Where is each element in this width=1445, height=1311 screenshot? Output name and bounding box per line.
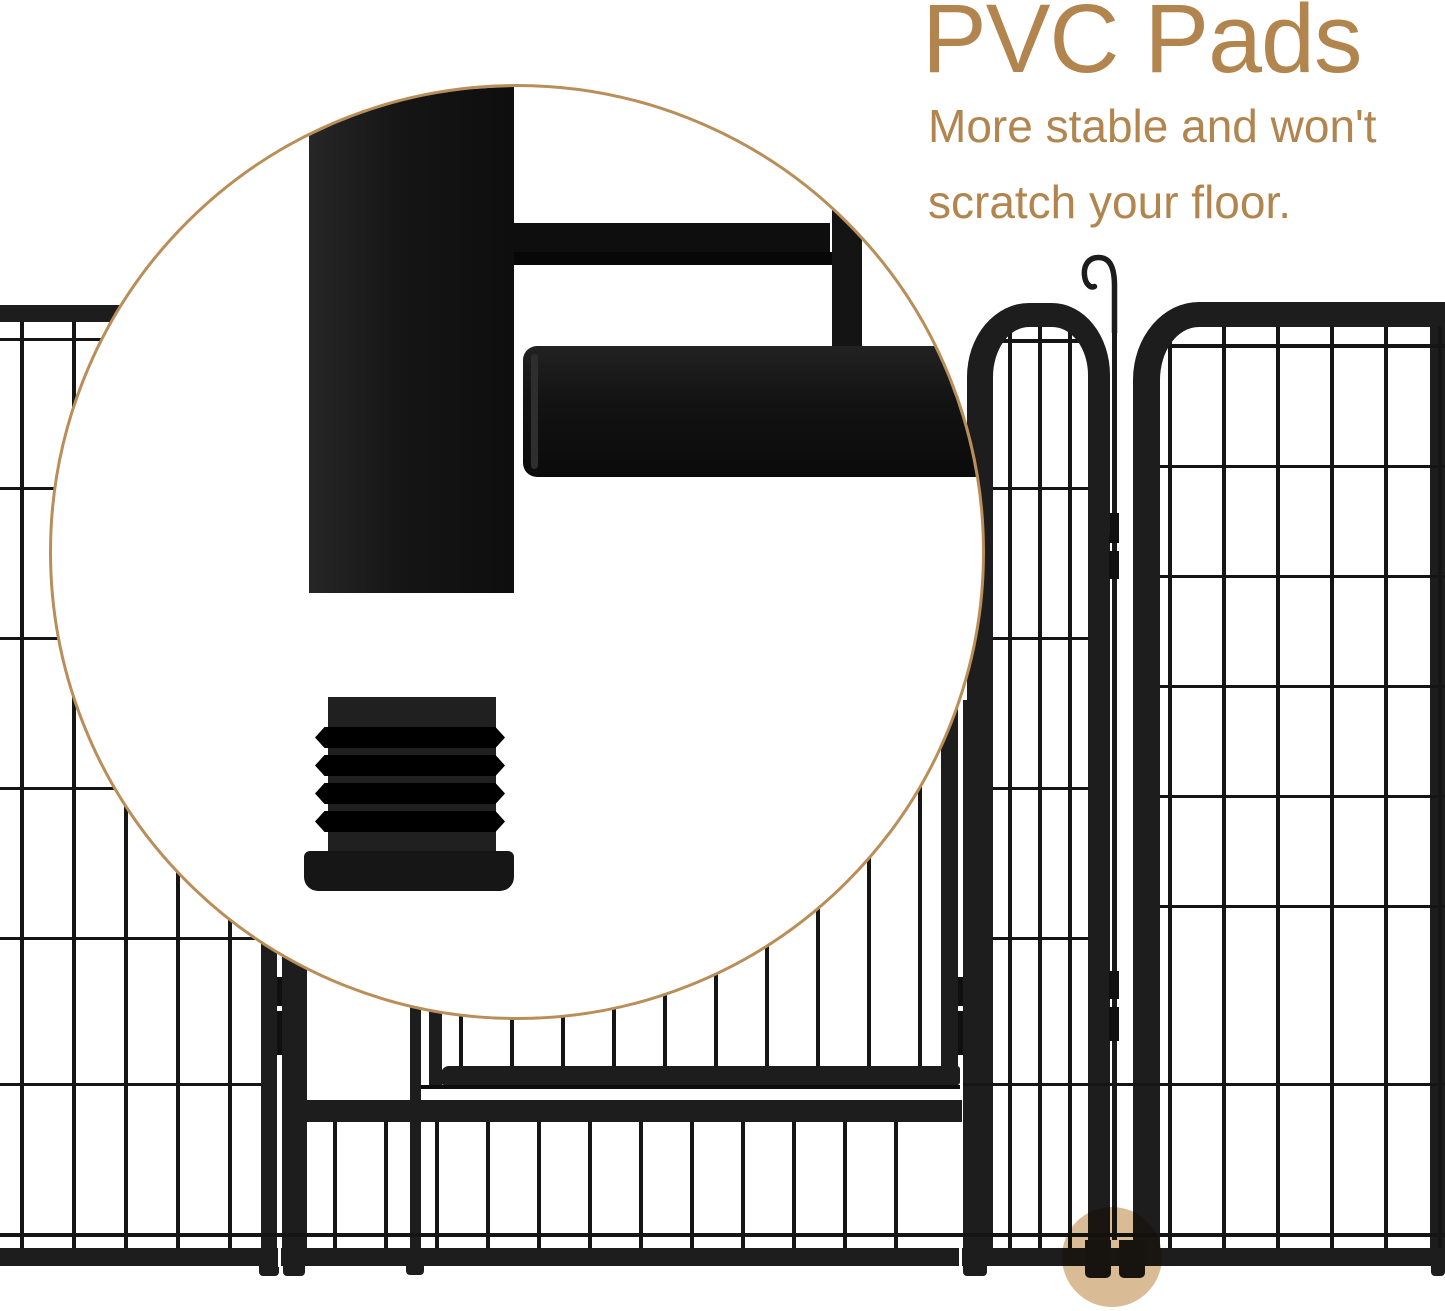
fence-bar: [20, 322, 24, 1248]
fence-bar: [486, 1122, 490, 1248]
fence-bar: [792, 1122, 796, 1248]
fence-bar: [406, 1266, 424, 1275]
fence-bar: [993, 637, 1088, 640]
fence-bar: [1160, 905, 1445, 908]
fence-bar: [0, 1248, 1445, 1266]
fence-bar: [1088, 520, 1110, 1248]
floor-highlight-dot: [1062, 1207, 1162, 1307]
fence-bar: [959, 1246, 962, 1267]
fence-bar: [1109, 1007, 1119, 1041]
fence-bar: [421, 1085, 960, 1089]
fence-bar: [410, 1003, 421, 1248]
fence-bar: [741, 1122, 745, 1248]
fence-panel-arch-wide: [1133, 302, 1445, 534]
fence-bar: [941, 700, 958, 1085]
fence-bar: [894, 1122, 898, 1248]
fence-bar: [333, 1122, 337, 1248]
fence-panel-arch-narrow: [967, 303, 1110, 535]
fence-bar: [277, 1011, 282, 1055]
pvc-pad-base-cap: [304, 851, 514, 891]
fence-bar: [259, 1266, 279, 1276]
fence-bar: [843, 1122, 847, 1248]
feature-text-block: PVC Pads More stable and won't scratch y…: [0, 0, 1445, 300]
fence-bar: [435, 1122, 439, 1248]
pvc-pad-rib: [315, 755, 505, 776]
fence-bar: [1133, 520, 1160, 1248]
fence-bar: [1160, 575, 1445, 578]
fence-bar: [963, 1083, 1445, 1086]
fence-bar: [958, 1011, 963, 1055]
fence-bar: [639, 1122, 643, 1248]
fence-bar: [537, 1122, 541, 1248]
pvc-pad-rib: [315, 811, 505, 832]
fence-bar: [1431, 1266, 1445, 1276]
fence-bar: [958, 977, 963, 1006]
fence-bar: [283, 1266, 305, 1276]
pvc-pad-rib: [315, 783, 505, 804]
fence-bar: [1109, 971, 1119, 999]
fence-bar: [1160, 685, 1445, 688]
magnified-tube-end-cap: [531, 354, 538, 469]
feature-subtitle-line2: scratch your floor.: [928, 179, 1291, 225]
fence-bar: [963, 1266, 987, 1276]
fence-bar: [384, 1122, 388, 1248]
fence-bar: [1109, 513, 1119, 543]
fence-bar: [278, 1246, 281, 1267]
fence-bar: [1112, 317, 1117, 1240]
fence-bar: [0, 1083, 261, 1086]
fence-bar: [588, 1122, 592, 1248]
fence-bar: [441, 1066, 960, 1085]
feature-subtitle-line1: More stable and won't: [928, 103, 1377, 149]
pvc-pad-rib: [315, 727, 505, 748]
fence-bar: [690, 1122, 694, 1248]
fence-bar: [277, 977, 282, 1006]
product-feature-image: PVC Pads More stable and won't scratch y…: [0, 0, 1445, 1311]
fence-bar: [993, 937, 1088, 940]
fence-bar: [993, 787, 1088, 790]
feature-title: PVC Pads: [922, 0, 1362, 90]
fence-bar: [1160, 795, 1445, 798]
magnified-bottom-rail-tube: [523, 346, 985, 477]
fence-bar: [1109, 551, 1119, 579]
fence-bar: [0, 937, 261, 940]
fence-bar: [0, 1233, 1445, 1237]
fence-bar: [307, 1100, 962, 1122]
